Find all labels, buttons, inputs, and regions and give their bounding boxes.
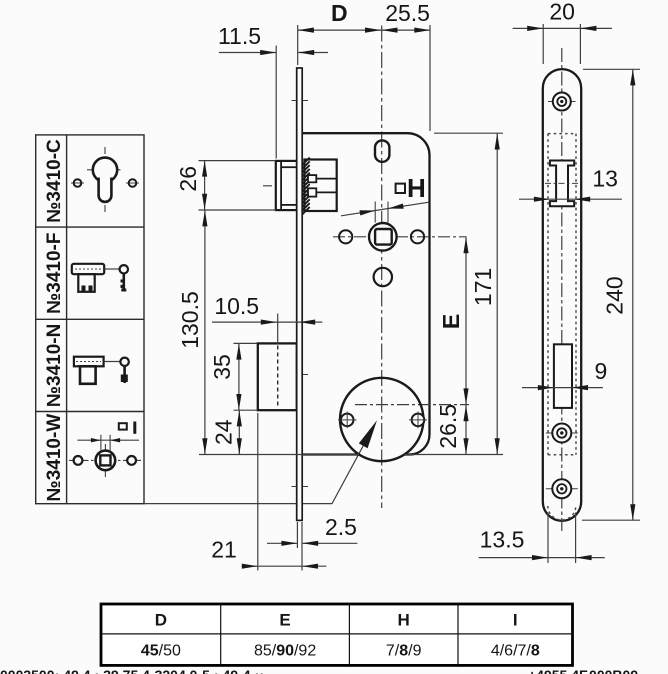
svg-text:25.5: 25.5 bbox=[385, 0, 430, 26]
svg-text:24: 24 bbox=[211, 419, 237, 445]
svg-text:D: D bbox=[331, 0, 348, 26]
svg-text:0003500• 49.4 • 39.75.4-3204.0: 0003500• 49.4 • 39.75.4-3204.0-5 • 49-4 … bbox=[0, 667, 264, 674]
svg-text:20: 20 bbox=[549, 0, 575, 24]
svg-text:E: E bbox=[438, 314, 464, 329]
svg-text:10.5: 10.5 bbox=[214, 293, 259, 319]
svg-text:E: E bbox=[279, 611, 290, 630]
svg-text:13.5: 13.5 bbox=[480, 526, 525, 552]
svg-text:№3410-F: №3410-F bbox=[44, 233, 65, 314]
svg-text:171: 171 bbox=[470, 268, 496, 306]
svg-text:7/8/9: 7/8/9 bbox=[386, 643, 422, 660]
svg-text:H: H bbox=[398, 611, 410, 630]
svg-text:240: 240 bbox=[601, 276, 627, 314]
svg-text:13: 13 bbox=[592, 166, 618, 192]
svg-text:2.5: 2.5 bbox=[325, 514, 357, 540]
svg-text:№3410-N: №3410-N bbox=[44, 324, 65, 408]
svg-text:35: 35 bbox=[209, 354, 235, 380]
svg-text:21: 21 bbox=[211, 536, 237, 562]
svg-text:45/50: 45/50 bbox=[141, 643, 181, 660]
svg-text:D: D bbox=[155, 611, 167, 630]
svg-text:26.5: 26.5 bbox=[435, 404, 461, 449]
svg-text:26: 26 bbox=[175, 166, 201, 192]
svg-text:I: I bbox=[513, 611, 518, 630]
svg-text:85/90/92: 85/90/92 bbox=[254, 643, 316, 660]
svg-text:11.5: 11.5 bbox=[218, 23, 261, 49]
svg-text:130.5: 130.5 bbox=[177, 291, 203, 349]
svg-text:+4955.4Б000В09: +4955.4Б000В09 bbox=[528, 667, 638, 674]
svg-text:9: 9 bbox=[595, 358, 608, 384]
svg-text:H: H bbox=[407, 173, 426, 203]
svg-text:4/6/7/8: 4/6/7/8 bbox=[491, 643, 540, 660]
svg-text:№3410-W: №3410-W bbox=[44, 414, 65, 502]
svg-text:№3410-C: №3410-C bbox=[44, 139, 65, 223]
